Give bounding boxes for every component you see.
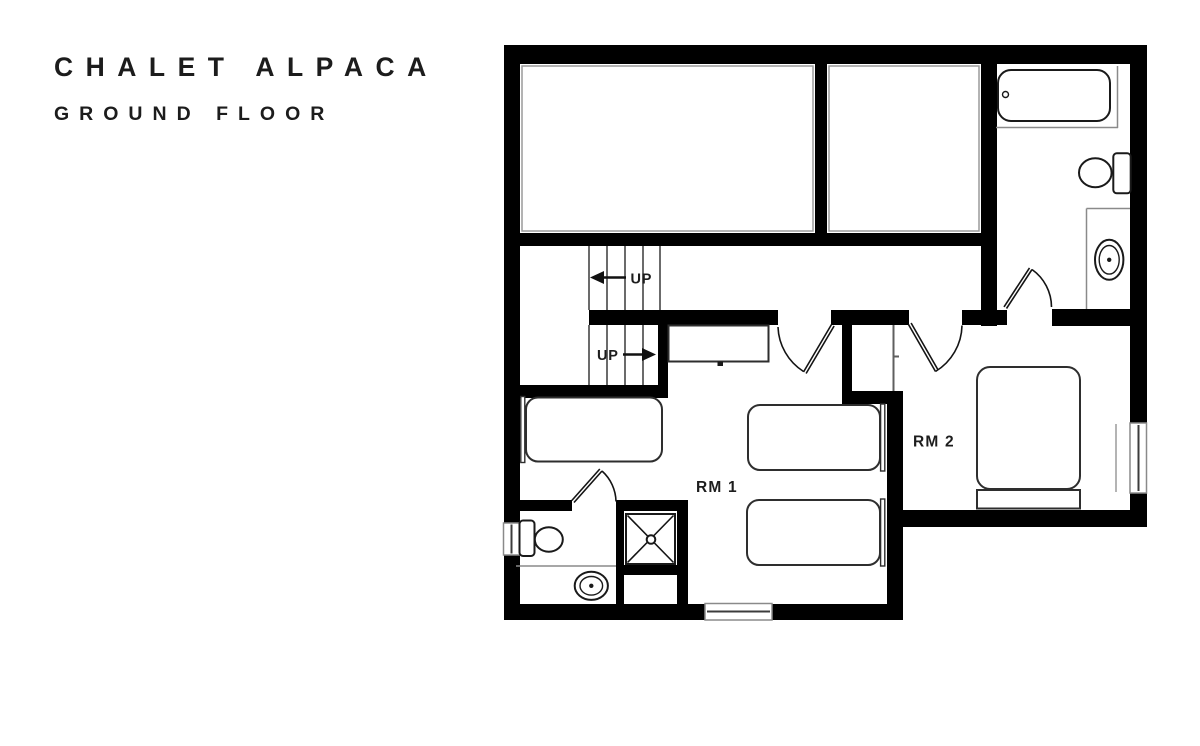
single-bed xyxy=(526,398,662,462)
bed-headboard xyxy=(881,499,885,566)
wall-room2-bottom xyxy=(887,510,1147,527)
toilet-tank-icon xyxy=(520,521,535,557)
wall-shower-west xyxy=(616,511,624,605)
door-room1 xyxy=(778,325,834,374)
top-left-room-outline xyxy=(522,66,813,231)
wall-top xyxy=(504,45,1147,64)
wall-ensuite-north-b xyxy=(616,500,688,511)
wall-ensuite-east xyxy=(677,511,688,605)
wall-room2-nook-west xyxy=(842,325,852,391)
page-subtitle: GROUND FLOOR xyxy=(54,103,334,125)
top-bathroom xyxy=(996,66,1131,309)
up-arrow-lower-head-icon xyxy=(642,348,656,361)
wall-corridor-south-a xyxy=(589,310,778,325)
wall-stairs-south xyxy=(520,385,668,398)
wall-top-rooms-south xyxy=(504,233,997,246)
up-label-lower: UP xyxy=(597,348,619,364)
door-ensuite-swing-arc xyxy=(602,471,616,502)
toilet-bowl-icon xyxy=(1079,158,1112,187)
room2-label: RM 2 xyxy=(913,434,955,451)
room2-furniture xyxy=(894,325,1081,509)
wall-room2-nook-south xyxy=(842,391,903,404)
door-top-bathroom-swing-arc xyxy=(1032,270,1052,308)
wall-corridor-south-c xyxy=(962,310,1007,325)
top-rooms xyxy=(522,66,979,231)
door-top-bathroom-leaf xyxy=(1007,270,1033,309)
door-room2-leaf xyxy=(909,325,936,372)
sink-drain-icon xyxy=(1107,258,1111,262)
toilet-tank-icon xyxy=(1113,153,1130,193)
room1-furniture xyxy=(521,326,885,567)
door-room1-leaf xyxy=(804,325,832,373)
door-top-bathroom-leaf xyxy=(1004,268,1030,307)
double-bed xyxy=(977,367,1080,489)
single-bed xyxy=(747,500,880,565)
page-title: CHALET ALPACA xyxy=(54,52,439,82)
toilet-bowl-icon xyxy=(535,527,563,551)
single-bed xyxy=(748,405,880,470)
shower-drain-icon xyxy=(647,535,656,544)
wall-bathroom-south xyxy=(1052,309,1147,326)
room1-label: RM 1 xyxy=(696,479,738,496)
console-cabinet xyxy=(669,326,769,362)
wall-ensuite-north-a xyxy=(516,500,572,511)
door-room2 xyxy=(909,323,963,372)
bed-headboard xyxy=(881,404,885,471)
top-middle-room-outline xyxy=(829,66,979,231)
door-room2-swing-arc xyxy=(936,326,963,372)
shower-icon xyxy=(626,514,675,564)
bathtub-icon xyxy=(998,70,1110,121)
wall-top-rooms-divider xyxy=(815,64,827,235)
wall-corridor-south-b xyxy=(831,310,909,325)
sink-drain-icon xyxy=(589,584,593,588)
floor-plan-canvas: CHALET ALPACA GROUND FLOOR xyxy=(0,0,1200,746)
door-room2-leaf xyxy=(911,323,938,370)
wall-step-divider xyxy=(887,391,903,620)
door-top-bathroom xyxy=(1004,268,1052,309)
bed-footboard xyxy=(977,490,1080,509)
wall-bottom xyxy=(504,604,903,620)
console-handle-icon xyxy=(718,362,724,367)
bed-headboard xyxy=(521,397,525,463)
wall-bathroom-west xyxy=(981,64,997,326)
wall-shower-south xyxy=(616,565,688,575)
door-room1-swing-arc xyxy=(778,327,804,372)
up-label-upper: UP xyxy=(631,272,653,288)
floor-plan-page: CHALET ALPACA GROUND FLOOR xyxy=(0,0,1200,746)
door-ensuite-bathroom xyxy=(572,469,616,503)
door-ensuite-leaf xyxy=(574,471,602,503)
door-ensuite-leaf xyxy=(572,469,600,501)
door-room1-leaf xyxy=(806,326,834,374)
up-arrow-upper-head-icon xyxy=(590,271,604,284)
ensuite-bathroom xyxy=(516,514,675,600)
